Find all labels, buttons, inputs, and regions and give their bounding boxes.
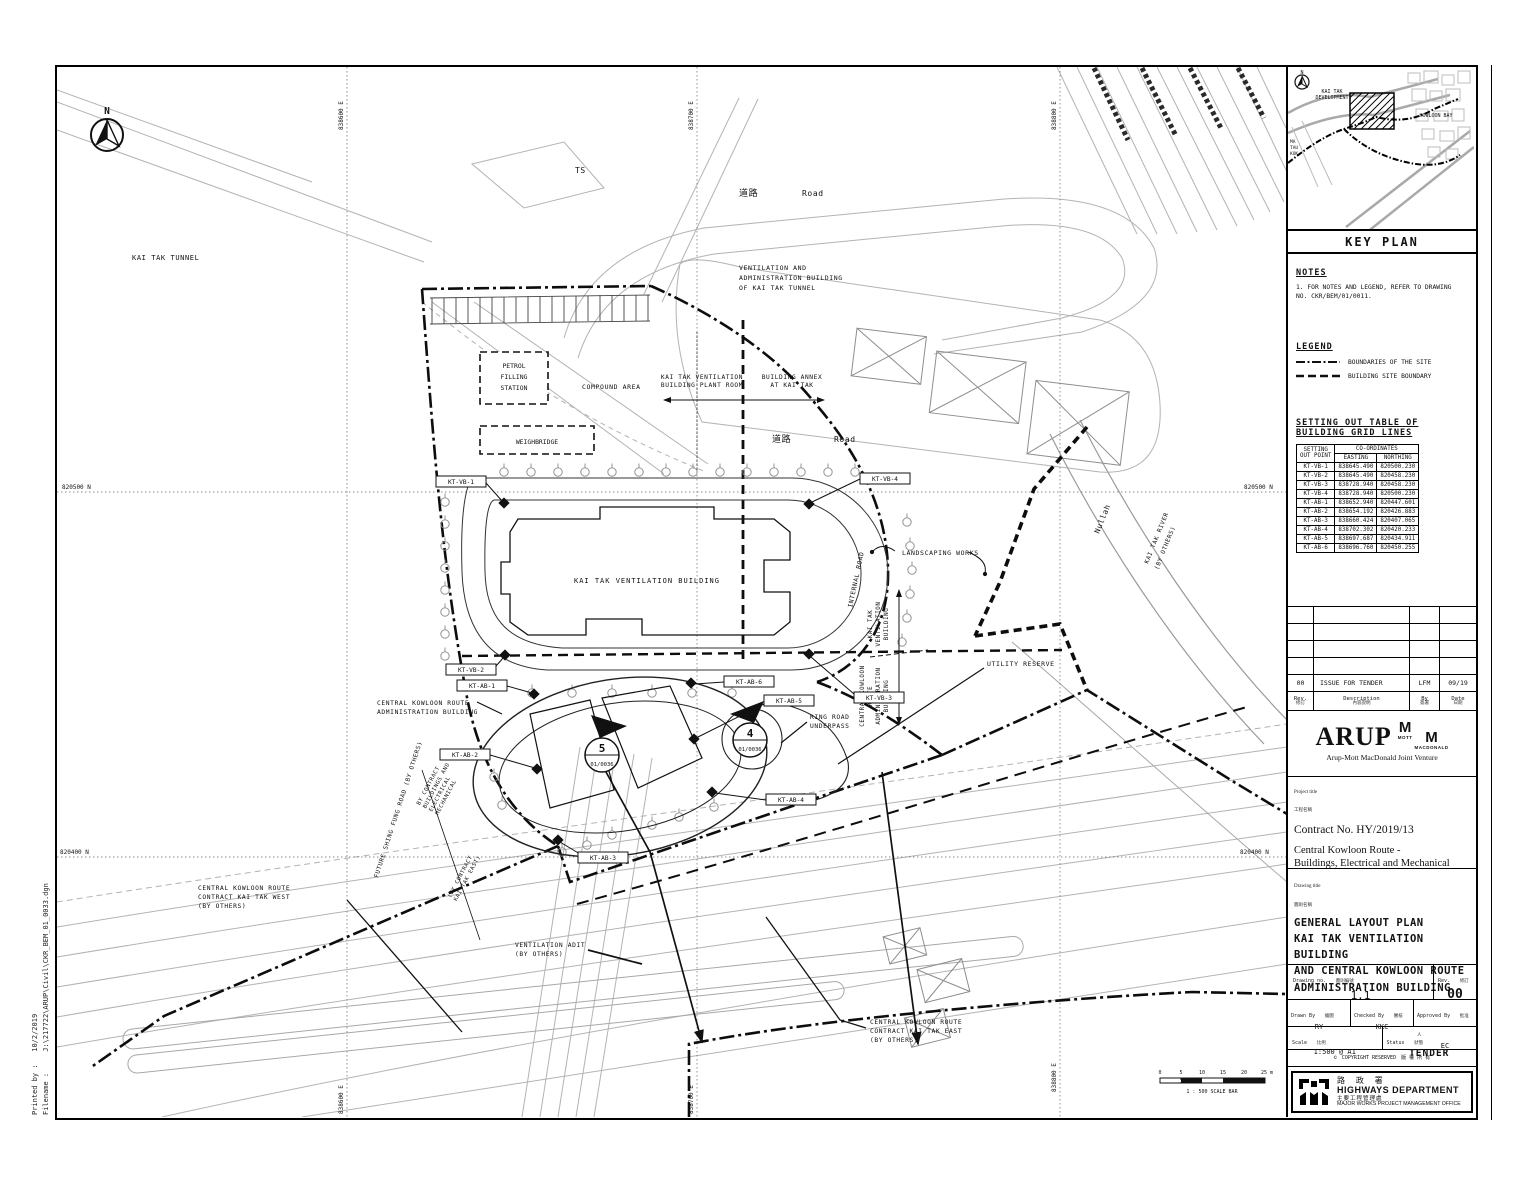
revision-row: 00 ISSUE FOR TENDER LFM 09/19	[1288, 674, 1476, 691]
table-row: KT-AB-3838660.424820407.065	[1297, 516, 1419, 525]
scale-bar-caption: 1 : 500 SCALE BAR	[1186, 1089, 1238, 1095]
setting-out-heading: SETTING OUT TABLE OF BUILDING GRID LINES	[1296, 418, 1468, 438]
key-plan-ma-tau-kok-label: KOK	[1290, 151, 1298, 157]
key-plan-development-label: DEVELOPMENT	[1315, 95, 1348, 101]
utility-reserve-label: UTILITY RESERVE	[987, 660, 1055, 668]
table-row: KT-AB-1838652.940820447.601	[1297, 498, 1419, 507]
setting-out-table: SETTINGOUT POINT CO-ORDINATES EASTINGNOR…	[1296, 444, 1419, 553]
structure-hatch-layer	[1094, 68, 1264, 140]
table-row: KT-VB-2838645.490820458.230	[1297, 471, 1419, 480]
section-number: 5	[599, 742, 606, 755]
ventilation-building-outline	[501, 507, 790, 635]
easting-label: 838800 E	[1051, 101, 1058, 130]
annex-label: BUILDING ANNEX	[762, 374, 823, 381]
drawing-title-block: Drawing title圖則名稱 GENERAL LAYOUT PLAN KA…	[1288, 869, 1476, 965]
svg-text:BUILDING: BUILDING	[884, 608, 890, 641]
table-row: KT-AB-4838702.302820420.233	[1297, 525, 1419, 534]
ckr-east-label: CENTRAL KOWLOON ROUTE	[870, 1019, 962, 1026]
highways-department-logo-icon	[1298, 1078, 1330, 1106]
svg-text:WEIGHBRIDGE: WEIGHBRIDGE	[516, 438, 558, 446]
compound-area-label: COMPOUND AREA	[582, 383, 641, 391]
leader-lines	[347, 400, 987, 1032]
vab-label: OF KAI TAK TUNNEL	[739, 284, 816, 292]
svg-text:KT-AB-5: KT-AB-5	[776, 698, 802, 705]
svg-text:KAI TAK: KAI TAK	[868, 610, 874, 639]
drawing-number: 1.1	[1293, 989, 1428, 1002]
grid-bubbles	[441, 464, 916, 857]
copyright-icon: ©	[1334, 1055, 1337, 1061]
road-label-cn: 道路	[739, 187, 758, 199]
table-row: KT-AB-5838697.687820434.911	[1297, 534, 1419, 543]
table-row: KT-VB-3838728.940820458.230	[1297, 480, 1419, 489]
building-site-boundary-linestyle-icon	[1296, 373, 1340, 379]
svg-text:10: 10	[1199, 1070, 1205, 1076]
svg-text:VENTILATION: VENTILATION	[876, 602, 882, 647]
ring-road-underpass-label: UNDERPASS	[810, 723, 850, 730]
plant-room-label: BUILDING PLANT ROOM	[661, 382, 743, 389]
nullah-label: Nullah	[1093, 503, 1113, 535]
legend-item: BUILDING SITE BOUNDARY	[1296, 373, 1468, 380]
ckr-west-label: (BY OTHERS)	[198, 903, 246, 910]
legend-item: BOUNDARIES OF THE SITE	[1296, 359, 1468, 366]
svg-text:STATION: STATION	[501, 384, 528, 392]
project-title-block: Project title工程名稱 Contract No. HY/2019/1…	[1288, 777, 1476, 869]
svg-text:KT-VB-3: KT-VB-3	[866, 695, 892, 702]
consultant-logo-block: ARUP MMOTT MMACDONALD Arup-Mott MacDonal…	[1288, 711, 1476, 777]
vab-label: VENTILATION AND	[739, 264, 807, 272]
copyright-row: © COPYRIGHT RESERVED 版 權 所 有	[1288, 1050, 1476, 1068]
notes-legend-zone: NOTES 1. FOR NOTES AND LEGEND, REFER TO …	[1288, 254, 1476, 606]
mott-macdonald-logo: MMOTT MMACDONALD	[1398, 720, 1449, 750]
ventilation-building-label: KAI TAK VENTILATION BUILDING	[574, 577, 720, 585]
arup-logo: ARUP	[1316, 724, 1392, 750]
background-roads-layer	[57, 67, 1287, 1117]
scale-status-row: Scale 比例1:500 @ A1 Status 狀態TENDER	[1288, 1027, 1476, 1050]
ckr-admin-building-label: ADMINISTRATION BUILDING	[377, 709, 478, 716]
marker-kt-ab-6: KT-AB-6	[685, 676, 774, 689]
drawing-number-row: Drawing no. 圖則編號 1.1 Rev. 修訂 00	[1288, 965, 1476, 1000]
svg-text:PETROL: PETROL	[502, 362, 525, 370]
notes-heading: NOTES	[1296, 268, 1468, 278]
vent-adit-label: VENTILATION ADIT	[515, 942, 585, 949]
key-plan-ma-tau-kok-label: MA	[1290, 139, 1296, 145]
shing-fung-road-label: FUTURE SHING FUNG ROAD (BY OTHERS)	[373, 740, 424, 878]
revision-header-row: Rev.修訂 Description內容說明 By簽署 Date日期	[1288, 691, 1476, 711]
ckr-east-label: (BY OTHERS)	[870, 1037, 918, 1044]
ckr-west-label: CONTRACT KAI TAK WEST	[198, 894, 290, 901]
northing-label: 820500 N	[1244, 484, 1273, 491]
svg-text:KT-AB-2: KT-AB-2	[452, 752, 478, 759]
marker-kt-vb-2: KT-VB-2	[446, 649, 511, 675]
section-number: 4	[747, 727, 754, 740]
petrol-filling-station: PETROL FILLING STATION	[480, 352, 548, 404]
section-marker-4: 4 01/0036	[730, 701, 767, 757]
highways-department-block: 路 政 署 HIGHWAYS DEPARTMENT 主要工程管理處 MAJOR …	[1291, 1071, 1473, 1113]
print-info: Printed by : 10/2/2019 Filename : J:\217…	[30, 883, 52, 1115]
map-text-labels: KAI TAK TUNNEL TS 道路 Road 道路 Road VENTIL…	[132, 166, 1177, 1044]
building-site-boundary	[462, 320, 1247, 904]
marker-kt-ab-1: KT-AB-1	[457, 680, 540, 700]
survey-grid-layer	[57, 67, 1287, 1117]
key-plan-map: N KAI TAK DEVELOPMENT KOWLOON BAY MA TAU…	[1288, 67, 1476, 231]
svg-text:KT-VB-4: KT-VB-4	[872, 476, 898, 483]
key-plan-title: KEY PLAN	[1288, 231, 1476, 254]
easting-label: 838600 E	[338, 1085, 345, 1114]
marker-kt-vb-1: KT-VB-1	[436, 476, 510, 509]
by-contract-bem-label: BY CONTRACT BUILDINGS AND ELECTRICAL MEC…	[416, 759, 464, 817]
annex-label: AT KAI TAK	[770, 382, 813, 389]
section-sheet-ref: 01/0036	[590, 762, 613, 768]
easting-label: 838800 E	[1051, 1063, 1058, 1092]
svg-text:KT-VB-2: KT-VB-2	[458, 667, 484, 674]
svg-text:20: 20	[1241, 1070, 1247, 1076]
key-plan-north-icon: N	[1295, 70, 1309, 89]
joint-venture-label: Arup-Mott MacDonald Joint Venture	[1326, 753, 1437, 762]
svg-text:KT-VB-1: KT-VB-1	[448, 479, 474, 486]
site-plan-map: 838600 E 838700 E 838800 E 838600 E 8387…	[57, 67, 1287, 1117]
compound-parking-ticks	[430, 295, 650, 324]
northing-label: 820400 N	[60, 849, 89, 856]
key-plan-ma-tau-kok-label: TAU	[1290, 145, 1298, 151]
easting-label: 838600 E	[338, 101, 345, 130]
table-row: KT-VB-4838728.940820500.230	[1297, 489, 1419, 498]
ts-label: TS	[575, 166, 586, 175]
alignment-arrows	[606, 772, 918, 1044]
road-label-cn: 道路	[772, 433, 791, 445]
northing-label: 820500 N	[62, 484, 91, 491]
svg-text:15: 15	[1220, 1070, 1226, 1076]
svg-text:KT-AB-1: KT-AB-1	[469, 683, 495, 690]
landscaping-label: LANDSCAPING WORKS	[902, 549, 979, 557]
marker-kt-vb-4: KT-VB-4	[803, 473, 910, 510]
grid-coordinate-labels: 838600 E 838700 E 838800 E 838600 E 8387…	[60, 101, 1273, 1114]
svg-text:FILLING: FILLING	[501, 373, 528, 381]
table-row: KT-AB-2838654.192820426.883	[1297, 507, 1419, 516]
svg-text:KT-AB-6: KT-AB-6	[736, 679, 762, 686]
notes-item: 1. FOR NOTES AND LEGEND, REFER TO DRAWIN…	[1296, 283, 1468, 302]
drawing-sheet: 838600 E 838700 E 838800 E 838600 E 8387…	[55, 65, 1478, 1120]
sheet-trim-line	[1491, 65, 1492, 1120]
title-block-panel: N KAI TAK DEVELOPMENT KOWLOON BAY MA TAU…	[1286, 67, 1476, 1117]
northing-label: 820400 N	[1240, 849, 1269, 856]
contract-number: Contract No. HY/2019/13	[1294, 824, 1470, 836]
svg-text:0: 0	[1158, 1070, 1161, 1076]
svg-text:N: N	[104, 106, 110, 117]
key-plan-kowloon-bay-label: KOWLOON BAY	[1419, 113, 1452, 119]
svg-text:25 m: 25 m	[1261, 1070, 1273, 1076]
table-row: KT-VB-1838645.490820500.230	[1297, 462, 1419, 471]
section-sheet-ref: 01/0036	[738, 747, 761, 753]
key-plan-site-rect	[1350, 93, 1394, 129]
road-label-en: Road	[834, 435, 856, 444]
weighbridge: WEIGHBRIDGE	[480, 426, 594, 454]
site-boundary-linestyle-icon	[1296, 359, 1340, 365]
plant-room-label: KAI TAK VENTILATION	[661, 374, 743, 381]
project-title: Central Kowloon Route - Buildings, Elect…	[1294, 844, 1470, 870]
setting-out-markers: KT-VB-1 KT-VB-4 KT-VB-2 KT-VB-3 KT-AB-1 …	[436, 473, 910, 863]
svg-text:KT-AB-4: KT-AB-4	[778, 797, 804, 804]
drawing-sheet-page: { "page":{ "printed_by_label":"Printed b…	[0, 0, 1525, 1178]
road-label-en: Road	[802, 189, 824, 198]
easting-label: 838700 E	[688, 101, 695, 130]
ckr-east-label: CONTRACT KAI TAK EAST	[870, 1028, 962, 1035]
scale-bar: 0 5 10 15 20 25 m 1 : 500 SCALE BAR	[1158, 1070, 1273, 1095]
ckr-admin-building-label: CENTRAL KOWLOON ROUTE	[377, 700, 469, 707]
svg-text:5: 5	[1179, 1070, 1182, 1076]
revision-table-empty-rows	[1288, 606, 1476, 674]
kai-tak-tunnel-label: KAI TAK TUNNEL	[132, 254, 199, 262]
marker-kt-vb-3: KT-VB-3	[803, 648, 904, 703]
vent-adit-label: (BY OTHERS)	[515, 951, 563, 958]
vab-label: ADMINISTRATION BUILDING	[739, 274, 843, 282]
ring-road-underpass-label: RING ROAD	[810, 714, 850, 721]
ckr-west-label: CENTRAL KOWLOON ROUTE	[198, 885, 290, 892]
table-row: KT-AB-6838696.760820450.255	[1297, 543, 1419, 552]
signature-row: Drawn By 繪圖RY Checked By 審核KKC Approved …	[1288, 1000, 1476, 1027]
svg-text:KT-AB-3: KT-AB-3	[590, 855, 616, 862]
legend-heading: LEGEND	[1296, 342, 1468, 352]
